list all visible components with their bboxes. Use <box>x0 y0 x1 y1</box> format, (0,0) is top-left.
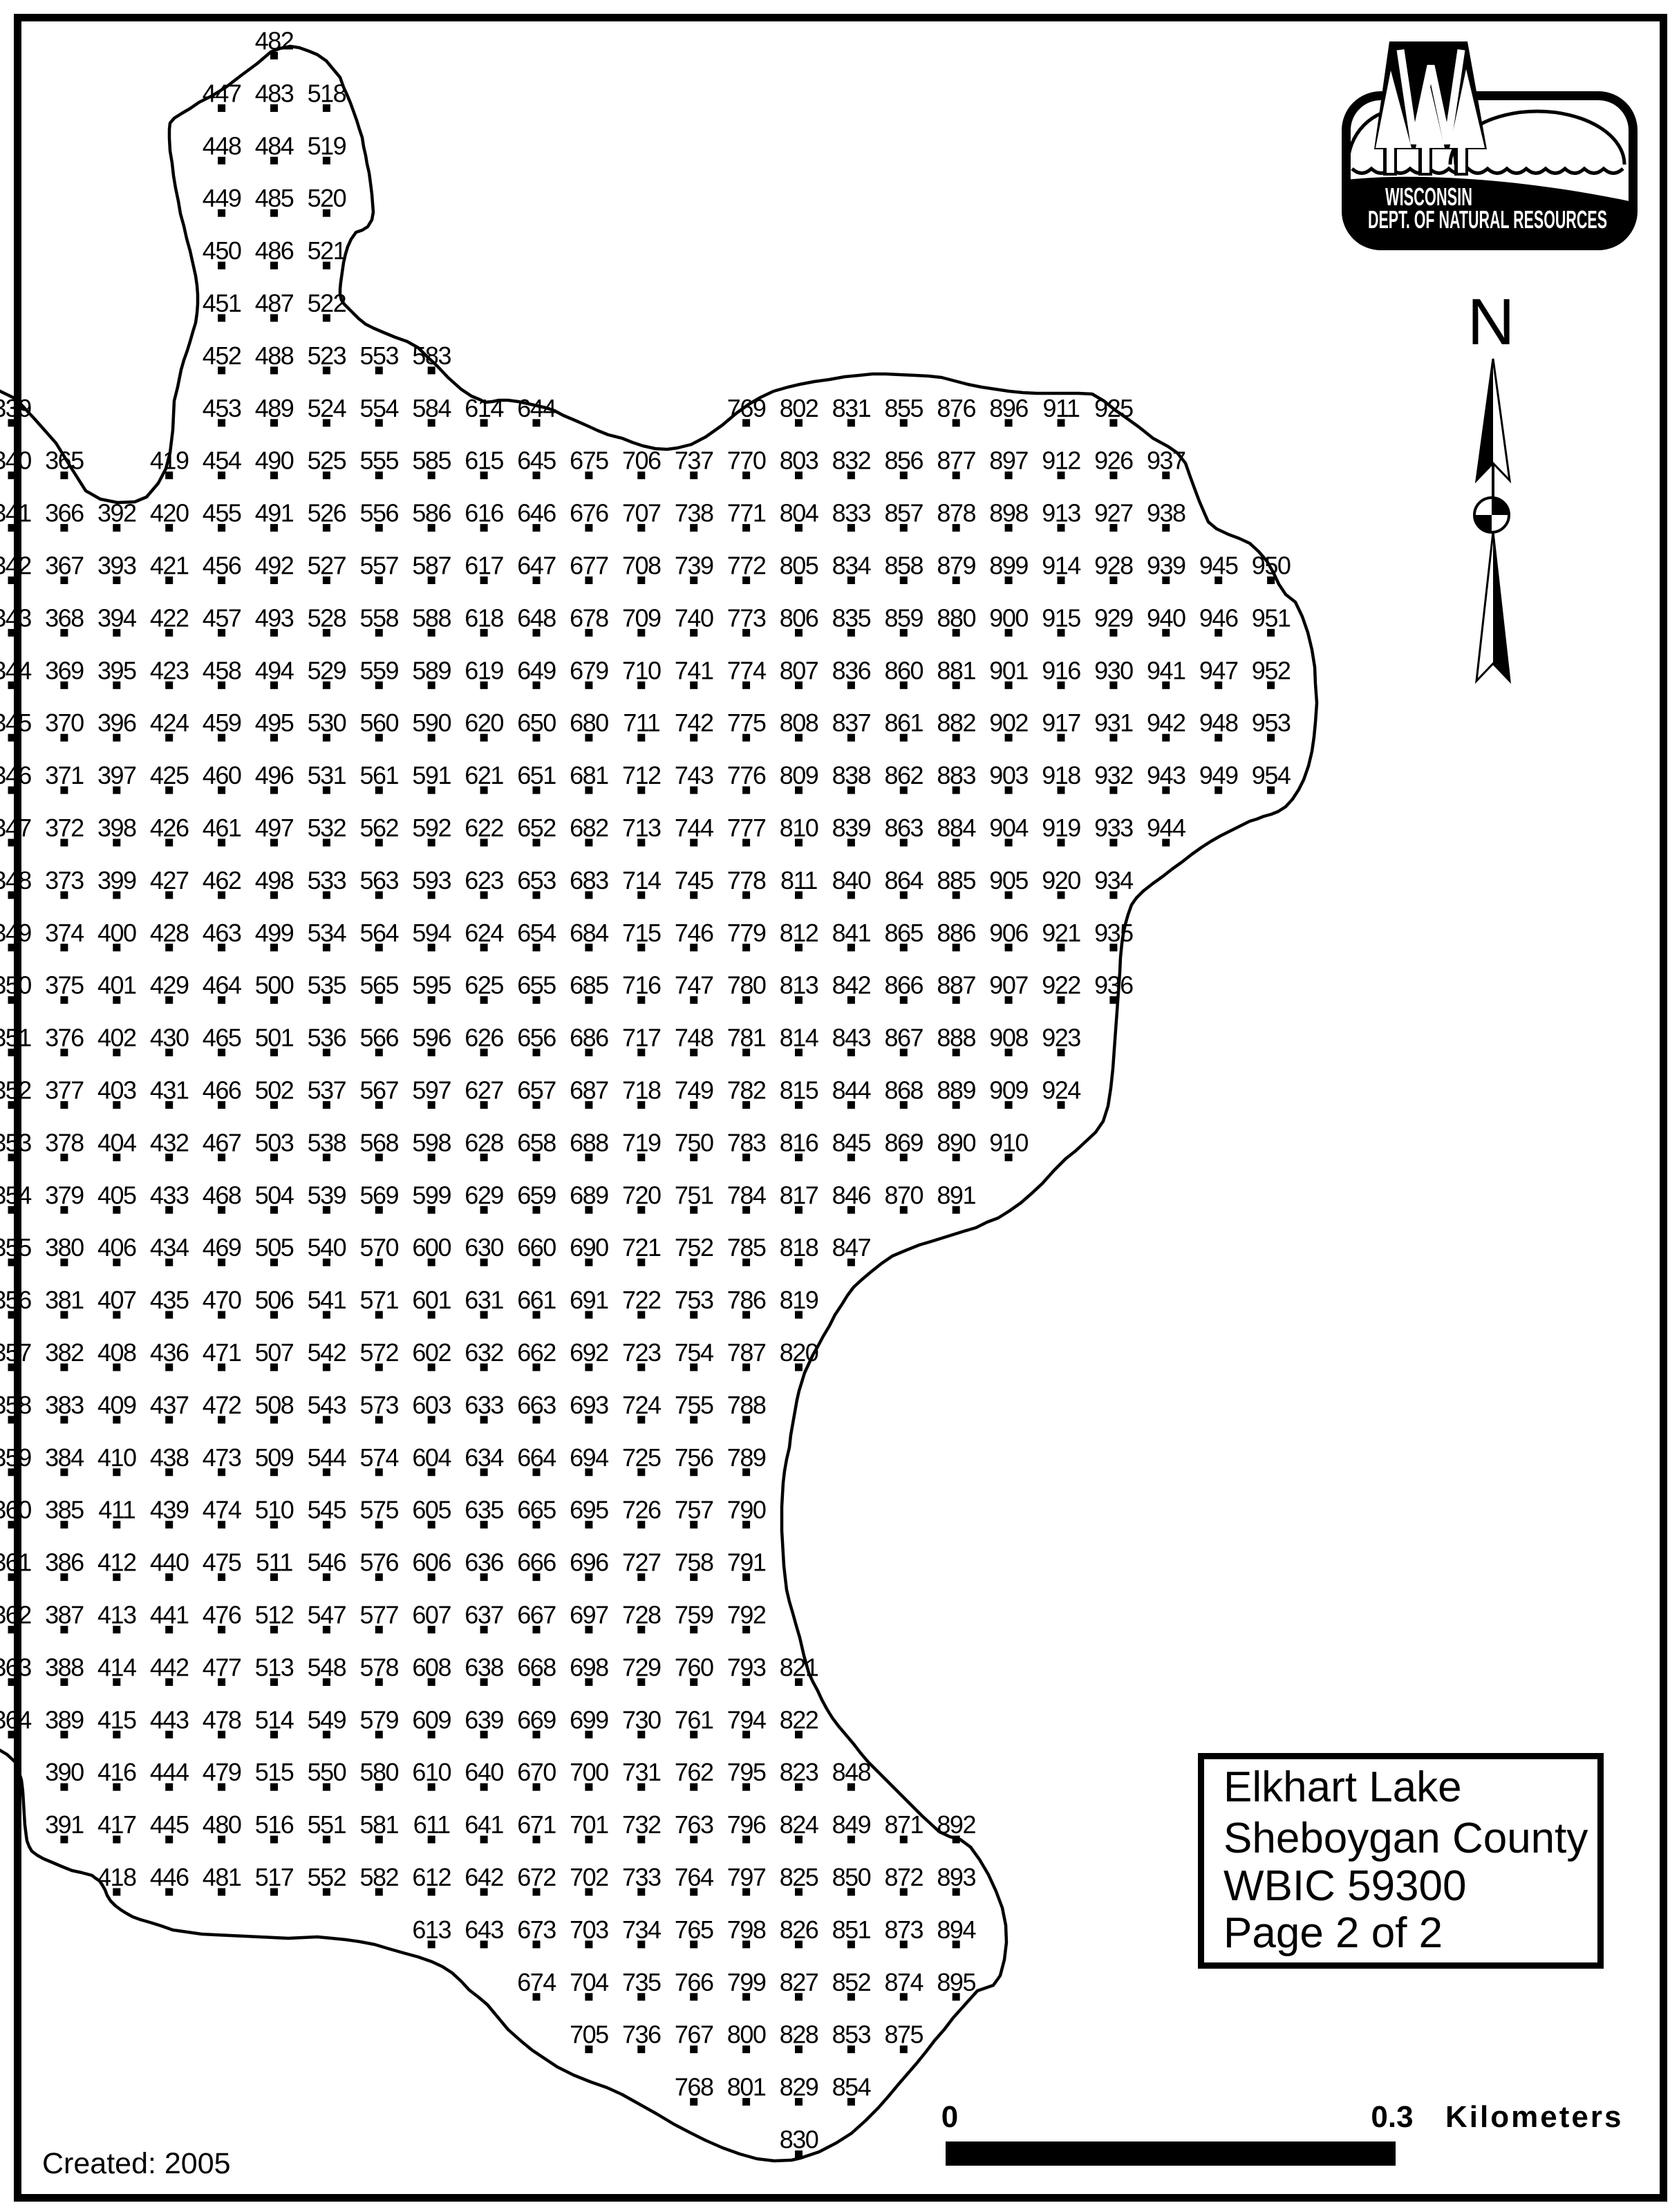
svg-text:683: 683 <box>570 866 608 894</box>
svg-text:415: 415 <box>97 1705 136 1734</box>
svg-text:876: 876 <box>937 394 975 422</box>
svg-text:936: 936 <box>1094 971 1133 1000</box>
svg-text:408: 408 <box>97 1338 136 1367</box>
svg-text:871: 871 <box>885 1810 923 1839</box>
svg-text:750: 750 <box>675 1128 713 1156</box>
svg-text:548: 548 <box>308 1653 346 1681</box>
svg-text:658: 658 <box>517 1128 556 1156</box>
svg-text:564: 564 <box>360 919 399 947</box>
svg-text:795: 795 <box>727 1758 766 1786</box>
svg-text:818: 818 <box>780 1233 818 1262</box>
svg-text:769: 769 <box>727 394 766 422</box>
svg-text:748: 748 <box>675 1024 713 1052</box>
svg-text:558: 558 <box>360 603 399 632</box>
svg-text:763: 763 <box>675 1810 713 1839</box>
svg-text:938: 938 <box>1147 499 1185 527</box>
svg-text:910: 910 <box>989 1128 1028 1156</box>
svg-text:620: 620 <box>465 709 503 737</box>
svg-text:932: 932 <box>1094 761 1133 789</box>
svg-text:457: 457 <box>203 603 241 632</box>
svg-text:598: 598 <box>412 1128 451 1156</box>
svg-text:846: 846 <box>832 1181 871 1209</box>
svg-text:365: 365 <box>45 447 84 475</box>
svg-text:853: 853 <box>832 2021 871 2049</box>
svg-text:494: 494 <box>255 656 294 684</box>
svg-text:574: 574 <box>360 1443 399 1472</box>
svg-text:953: 953 <box>1252 709 1291 737</box>
svg-text:674: 674 <box>517 1968 556 1996</box>
svg-text:387: 387 <box>45 1601 84 1629</box>
svg-text:409: 409 <box>97 1391 136 1419</box>
svg-text:770: 770 <box>727 447 766 475</box>
svg-text:815: 815 <box>780 1076 818 1105</box>
svg-text:700: 700 <box>570 1758 608 1786</box>
svg-text:502: 502 <box>255 1076 294 1105</box>
svg-text:788: 788 <box>727 1391 766 1419</box>
svg-text:454: 454 <box>203 447 241 475</box>
svg-text:883: 883 <box>937 761 975 789</box>
svg-text:840: 840 <box>832 866 871 894</box>
svg-text:950: 950 <box>1252 552 1291 580</box>
svg-text:837: 837 <box>832 709 871 737</box>
svg-text:930: 930 <box>1094 656 1133 684</box>
svg-text:501: 501 <box>255 1024 294 1052</box>
svg-text:614: 614 <box>465 394 503 422</box>
svg-text:777: 777 <box>727 814 766 842</box>
svg-text:874: 874 <box>885 1968 923 1996</box>
svg-text:507: 507 <box>255 1338 294 1367</box>
svg-text:500: 500 <box>255 971 294 1000</box>
svg-text:690: 690 <box>570 1233 608 1262</box>
svg-text:578: 578 <box>360 1653 399 1681</box>
svg-text:486: 486 <box>255 236 294 265</box>
svg-text:682: 682 <box>570 814 608 842</box>
svg-text:634: 634 <box>465 1443 503 1472</box>
svg-text:428: 428 <box>150 919 189 947</box>
svg-text:432: 432 <box>150 1128 189 1156</box>
svg-text:817: 817 <box>780 1181 818 1209</box>
svg-text:894: 894 <box>937 1915 975 1944</box>
svg-text:641: 641 <box>465 1810 503 1839</box>
svg-text:434: 434 <box>150 1233 189 1262</box>
svg-text:782: 782 <box>727 1076 766 1105</box>
svg-text:765: 765 <box>675 1915 713 1944</box>
svg-text:423: 423 <box>150 656 189 684</box>
svg-text:563: 563 <box>360 866 399 894</box>
svg-text:758: 758 <box>675 1548 713 1577</box>
svg-text:468: 468 <box>203 1181 241 1209</box>
svg-text:696: 696 <box>570 1548 608 1577</box>
svg-text:417: 417 <box>97 1810 136 1839</box>
svg-text:761: 761 <box>675 1705 713 1734</box>
svg-text:775: 775 <box>727 709 766 737</box>
svg-text:652: 652 <box>517 814 556 842</box>
svg-text:724: 724 <box>622 1391 661 1419</box>
svg-text:823: 823 <box>780 1758 818 1786</box>
svg-text:882: 882 <box>937 709 975 737</box>
svg-text:783: 783 <box>727 1128 766 1156</box>
svg-text:793: 793 <box>727 1653 766 1681</box>
svg-text:523: 523 <box>308 341 346 370</box>
svg-text:809: 809 <box>780 761 818 789</box>
svg-text:487: 487 <box>255 289 294 317</box>
svg-text:685: 685 <box>570 971 608 1000</box>
svg-text:479: 479 <box>203 1758 241 1786</box>
svg-text:608: 608 <box>412 1653 451 1681</box>
svg-text:718: 718 <box>622 1076 661 1105</box>
svg-text:376: 376 <box>45 1024 84 1052</box>
svg-text:916: 916 <box>1042 656 1080 684</box>
svg-text:798: 798 <box>727 1915 766 1944</box>
svg-text:Sheboygan County: Sheboygan County <box>1223 1815 1588 1862</box>
svg-text:406: 406 <box>97 1233 136 1262</box>
svg-text:584: 584 <box>412 394 451 422</box>
svg-text:842: 842 <box>832 971 871 1000</box>
svg-text:546: 546 <box>308 1548 346 1577</box>
svg-text:722: 722 <box>622 1286 661 1314</box>
svg-text:436: 436 <box>150 1338 189 1367</box>
svg-text:694: 694 <box>570 1443 608 1472</box>
svg-text:785: 785 <box>727 1233 766 1262</box>
svg-text:922: 922 <box>1042 971 1080 1000</box>
svg-text:918: 918 <box>1042 761 1080 789</box>
svg-text:679: 679 <box>570 656 608 684</box>
svg-text:605: 605 <box>412 1496 451 1524</box>
svg-text:556: 556 <box>360 499 399 527</box>
svg-text:377: 377 <box>45 1076 84 1105</box>
svg-text:678: 678 <box>570 603 608 632</box>
svg-text:663: 663 <box>517 1391 556 1419</box>
svg-text:662: 662 <box>517 1338 556 1367</box>
svg-text:451: 451 <box>203 289 241 317</box>
svg-text:757: 757 <box>675 1496 713 1524</box>
svg-text:499: 499 <box>255 919 294 947</box>
svg-text:905: 905 <box>989 866 1028 894</box>
svg-text:477: 477 <box>203 1653 241 1681</box>
svg-text:790: 790 <box>727 1496 766 1524</box>
svg-text:941: 941 <box>1147 656 1185 684</box>
svg-text:508: 508 <box>255 1391 294 1419</box>
svg-text:419: 419 <box>150 447 189 475</box>
svg-text:756: 756 <box>675 1443 713 1472</box>
svg-text:767: 767 <box>675 2021 713 2049</box>
svg-text:895: 895 <box>937 1968 975 1996</box>
svg-text:693: 693 <box>570 1391 608 1419</box>
svg-text:810: 810 <box>780 814 818 842</box>
svg-text:839: 839 <box>832 814 871 842</box>
svg-text:875: 875 <box>885 2021 923 2049</box>
svg-text:828: 828 <box>780 2021 818 2049</box>
svg-text:606: 606 <box>412 1548 451 1577</box>
svg-text:442: 442 <box>150 1653 189 1681</box>
svg-text:619: 619 <box>465 656 503 684</box>
svg-text:405: 405 <box>97 1181 136 1209</box>
svg-text:906: 906 <box>989 919 1028 947</box>
svg-text:944: 944 <box>1147 814 1185 842</box>
svg-text:762: 762 <box>675 1758 713 1786</box>
svg-text:872: 872 <box>885 1863 923 1891</box>
svg-text:437: 437 <box>150 1391 189 1419</box>
svg-text:Elkhart Lake: Elkhart Lake <box>1223 1763 1462 1811</box>
svg-text:531: 531 <box>308 761 346 789</box>
svg-text:737: 737 <box>675 447 713 475</box>
svg-text:688: 688 <box>570 1128 608 1156</box>
svg-text:653: 653 <box>517 866 556 894</box>
svg-text:637: 637 <box>465 1601 503 1629</box>
svg-text:745: 745 <box>675 866 713 894</box>
svg-text:654: 654 <box>517 919 556 947</box>
svg-text:456: 456 <box>203 552 241 580</box>
svg-text:642: 642 <box>465 1863 503 1891</box>
svg-text:439: 439 <box>150 1496 189 1524</box>
svg-text:949: 949 <box>1199 761 1238 789</box>
svg-text:885: 885 <box>937 866 975 894</box>
svg-text:907: 907 <box>989 971 1028 1000</box>
svg-text:431: 431 <box>150 1076 189 1105</box>
svg-text:498: 498 <box>255 866 294 894</box>
svg-text:565: 565 <box>360 971 399 1000</box>
svg-text:490: 490 <box>255 447 294 475</box>
svg-text:884: 884 <box>937 814 975 842</box>
svg-text:927: 927 <box>1094 499 1133 527</box>
svg-text:542: 542 <box>308 1338 346 1367</box>
svg-text:903: 903 <box>989 761 1028 789</box>
svg-text:812: 812 <box>780 919 818 947</box>
svg-text:590: 590 <box>412 709 451 737</box>
svg-text:539: 539 <box>308 1181 346 1209</box>
svg-text:638: 638 <box>465 1653 503 1681</box>
svg-text:543: 543 <box>308 1391 346 1419</box>
svg-text:866: 866 <box>885 971 923 1000</box>
svg-text:404: 404 <box>97 1128 136 1156</box>
svg-text:773: 773 <box>727 603 766 632</box>
svg-text:410: 410 <box>97 1443 136 1472</box>
svg-text:687: 687 <box>570 1076 608 1105</box>
svg-text:854: 854 <box>832 2073 871 2101</box>
svg-text:851: 851 <box>832 1915 871 1944</box>
svg-text:Kilometers: Kilometers <box>1445 2100 1623 2134</box>
svg-text:647: 647 <box>517 552 556 580</box>
svg-text:396: 396 <box>97 709 136 737</box>
svg-text:Page 2 of 2: Page 2 of 2 <box>1223 1909 1443 1957</box>
svg-text:734: 734 <box>622 1915 661 1944</box>
svg-text:796: 796 <box>727 1810 766 1839</box>
svg-text:706: 706 <box>622 447 661 475</box>
svg-text:433: 433 <box>150 1181 189 1209</box>
svg-text:880: 880 <box>937 603 975 632</box>
svg-text:621: 621 <box>465 761 503 789</box>
svg-text:413: 413 <box>97 1601 136 1629</box>
svg-text:888: 888 <box>937 1024 975 1052</box>
svg-text:740: 740 <box>675 603 713 632</box>
svg-text:511: 511 <box>256 1548 292 1577</box>
svg-text:889: 889 <box>937 1076 975 1105</box>
svg-text:890: 890 <box>937 1128 975 1156</box>
svg-text:743: 743 <box>675 761 713 789</box>
svg-text:386: 386 <box>45 1548 84 1577</box>
svg-text:920: 920 <box>1042 866 1080 894</box>
svg-text:725: 725 <box>622 1443 661 1472</box>
svg-text:469: 469 <box>203 1233 241 1262</box>
svg-text:811: 811 <box>780 866 817 894</box>
svg-text:667: 667 <box>517 1601 556 1629</box>
svg-text:533: 533 <box>308 866 346 894</box>
svg-text:807: 807 <box>780 656 818 684</box>
svg-text:746: 746 <box>675 919 713 947</box>
svg-text:602: 602 <box>412 1338 451 1367</box>
svg-text:593: 593 <box>412 866 451 894</box>
svg-text:528: 528 <box>308 603 346 632</box>
svg-text:847: 847 <box>832 1233 871 1262</box>
svg-text:917: 917 <box>1042 709 1080 737</box>
svg-text:717: 717 <box>622 1024 661 1052</box>
svg-text:460: 460 <box>203 761 241 789</box>
svg-text:393: 393 <box>97 552 136 580</box>
svg-text:855: 855 <box>885 394 923 422</box>
svg-text:896: 896 <box>989 394 1028 422</box>
svg-text:544: 544 <box>308 1443 346 1472</box>
svg-text:411: 411 <box>98 1496 135 1524</box>
svg-text:946: 946 <box>1199 603 1238 632</box>
svg-text:806: 806 <box>780 603 818 632</box>
svg-text:379: 379 <box>45 1181 84 1209</box>
svg-text:591: 591 <box>412 761 451 789</box>
svg-text:467: 467 <box>203 1128 241 1156</box>
svg-text:626: 626 <box>465 1024 503 1052</box>
svg-text:892: 892 <box>937 1810 975 1839</box>
svg-text:537: 537 <box>308 1076 346 1105</box>
svg-text:532: 532 <box>308 814 346 842</box>
svg-text:561: 561 <box>360 761 399 789</box>
svg-text:384: 384 <box>45 1443 84 1472</box>
svg-text:715: 715 <box>622 919 661 947</box>
svg-text:401: 401 <box>97 971 136 1000</box>
svg-text:421: 421 <box>150 552 189 580</box>
svg-text:397: 397 <box>97 761 136 789</box>
svg-text:430: 430 <box>150 1024 189 1052</box>
svg-text:555: 555 <box>360 447 399 475</box>
svg-text:615: 615 <box>465 447 503 475</box>
svg-text:480: 480 <box>203 1810 241 1839</box>
svg-text:488: 488 <box>255 341 294 370</box>
svg-text:445: 445 <box>150 1810 189 1839</box>
svg-text:504: 504 <box>255 1181 294 1209</box>
svg-text:909: 909 <box>989 1076 1028 1105</box>
svg-text:541: 541 <box>308 1286 346 1314</box>
svg-text:747: 747 <box>675 971 713 1000</box>
svg-text:627: 627 <box>465 1076 503 1105</box>
svg-text:395: 395 <box>97 656 136 684</box>
svg-text:635: 635 <box>465 1496 503 1524</box>
svg-text:692: 692 <box>570 1338 608 1367</box>
svg-text:844: 844 <box>832 1076 871 1105</box>
svg-text:643: 643 <box>465 1915 503 1944</box>
svg-text:904: 904 <box>989 814 1028 842</box>
svg-text:813: 813 <box>780 971 818 1000</box>
svg-text:617: 617 <box>465 552 503 580</box>
svg-text:588: 588 <box>412 603 451 632</box>
svg-text:506: 506 <box>255 1286 294 1314</box>
svg-text:933: 933 <box>1094 814 1133 842</box>
svg-text:389: 389 <box>45 1705 84 1734</box>
svg-text:779: 779 <box>727 919 766 947</box>
svg-text:536: 536 <box>308 1024 346 1052</box>
svg-text:664: 664 <box>517 1443 556 1472</box>
svg-text:729: 729 <box>622 1653 661 1681</box>
svg-text:676: 676 <box>570 499 608 527</box>
svg-text:819: 819 <box>780 1286 818 1314</box>
svg-text:764: 764 <box>675 1863 713 1891</box>
svg-text:587: 587 <box>412 552 451 580</box>
svg-text:833: 833 <box>832 499 871 527</box>
svg-text:375: 375 <box>45 971 84 1000</box>
svg-text:947: 947 <box>1199 656 1238 684</box>
svg-text:604: 604 <box>412 1443 451 1472</box>
svg-text:562: 562 <box>360 814 399 842</box>
svg-text:514: 514 <box>255 1705 294 1734</box>
svg-text:650: 650 <box>517 709 556 737</box>
svg-text:931: 931 <box>1094 709 1133 737</box>
svg-text:370: 370 <box>45 709 84 737</box>
svg-text:630: 630 <box>465 1233 503 1262</box>
svg-text:597: 597 <box>412 1076 451 1105</box>
svg-text:774: 774 <box>727 656 766 684</box>
svg-text:540: 540 <box>308 1233 346 1262</box>
svg-text:372: 372 <box>45 814 84 842</box>
svg-text:557: 557 <box>360 552 399 580</box>
svg-text:463: 463 <box>203 919 241 947</box>
svg-text:547: 547 <box>308 1601 346 1629</box>
svg-text:799: 799 <box>727 1968 766 1996</box>
svg-text:367: 367 <box>45 552 84 580</box>
svg-text:535: 535 <box>308 971 346 1000</box>
svg-text:821: 821 <box>780 1653 818 1681</box>
svg-text:879: 879 <box>937 552 975 580</box>
svg-text:908: 908 <box>989 1024 1028 1052</box>
svg-text:380: 380 <box>45 1233 84 1262</box>
svg-text:865: 865 <box>885 919 923 947</box>
svg-text:560: 560 <box>360 709 399 737</box>
svg-text:513: 513 <box>255 1653 294 1681</box>
svg-text:492: 492 <box>255 552 294 580</box>
svg-text:744: 744 <box>675 814 713 842</box>
svg-text:673: 673 <box>517 1915 556 1944</box>
svg-text:899: 899 <box>989 552 1028 580</box>
svg-text:677: 677 <box>570 552 608 580</box>
svg-text:631: 631 <box>465 1286 503 1314</box>
svg-text:378: 378 <box>45 1128 84 1156</box>
svg-text:935: 935 <box>1094 919 1133 947</box>
svg-text:646: 646 <box>517 499 556 527</box>
svg-text:754: 754 <box>675 1338 713 1367</box>
svg-text:952: 952 <box>1252 656 1291 684</box>
svg-text:869: 869 <box>885 1128 923 1156</box>
svg-text:878: 878 <box>937 499 975 527</box>
svg-text:568: 568 <box>360 1128 399 1156</box>
svg-text:610: 610 <box>412 1758 451 1786</box>
svg-text:580: 580 <box>360 1758 399 1786</box>
svg-text:509: 509 <box>255 1443 294 1472</box>
svg-text:371: 371 <box>45 761 84 789</box>
svg-text:721: 721 <box>622 1233 661 1262</box>
svg-text:381: 381 <box>45 1286 84 1314</box>
svg-text:686: 686 <box>570 1024 608 1052</box>
svg-text:522: 522 <box>308 289 346 317</box>
svg-text:592: 592 <box>412 814 451 842</box>
svg-text:698: 698 <box>570 1653 608 1681</box>
svg-text:897: 897 <box>989 447 1028 475</box>
svg-text:841: 841 <box>832 919 871 947</box>
